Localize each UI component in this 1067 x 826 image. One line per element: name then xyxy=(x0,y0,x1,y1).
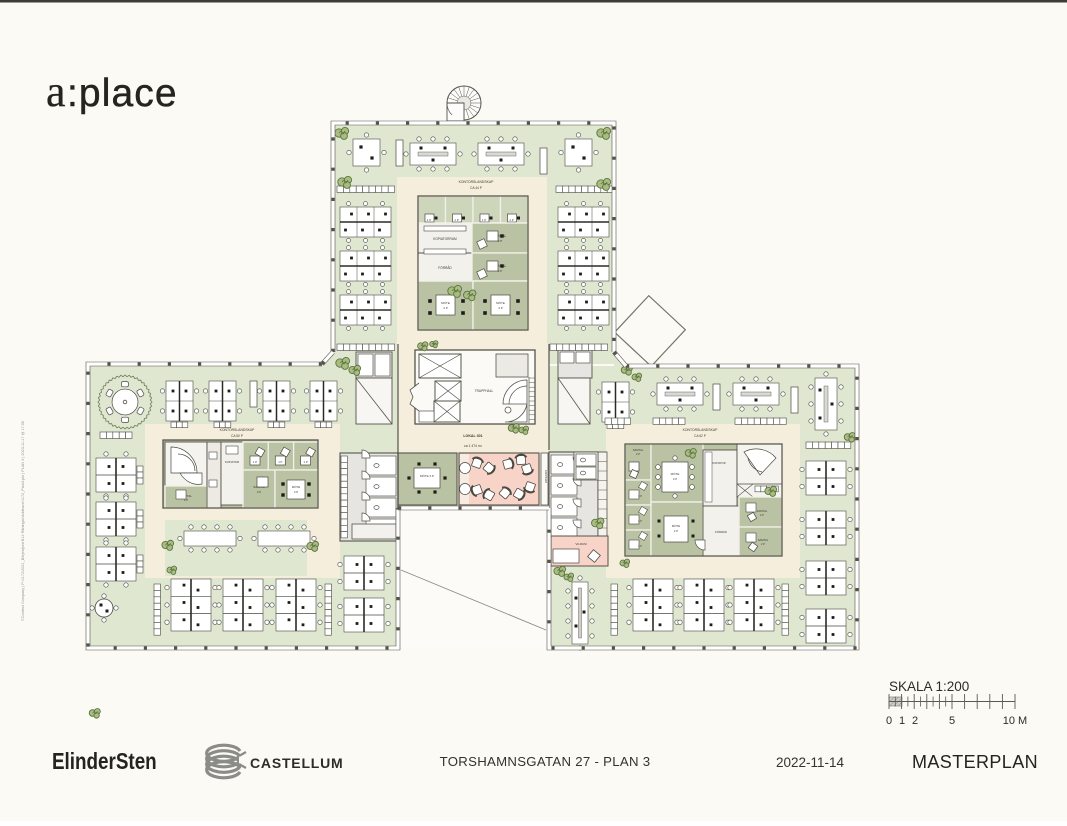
svg-text:SAMTAL: SAMTAL xyxy=(758,538,769,542)
svg-text:1: 1 xyxy=(899,715,905,727)
svg-text:2022-11-14: 2022-11-14 xyxy=(776,755,845,770)
svg-text:2 P: 2 P xyxy=(760,513,764,517)
svg-text:SAMTAL: SAMTAL xyxy=(633,448,644,452)
svg-text:1 P: 1 P xyxy=(427,218,432,222)
svg-text:CA 62 P: CA 62 P xyxy=(694,434,706,438)
svg-text:1 P: 1 P xyxy=(303,460,307,464)
svg-text:MÖTE: MÖTE xyxy=(672,524,680,528)
svg-text:4 P: 4 P xyxy=(294,490,298,494)
svg-text:2 P: 2 P xyxy=(257,490,261,494)
svg-text:4 P: 4 P xyxy=(498,306,503,310)
svg-text:1 P: 1 P xyxy=(638,519,642,523)
svg-text:MÖTE 4 P: MÖTE 4 P xyxy=(420,474,434,478)
svg-text:VILRUM: VILRUM xyxy=(575,542,587,546)
svg-text:1 P: 1 P xyxy=(278,460,282,464)
svg-text:TRAPPHALL: TRAPPHALL xyxy=(475,389,494,393)
svg-text:MÖTE: MÖTE xyxy=(671,472,680,476)
svg-text:2 P: 2 P xyxy=(498,269,503,273)
svg-text:1 P: 1 P xyxy=(482,218,487,222)
svg-text:SAMTAL: SAMTAL xyxy=(757,509,768,513)
svg-text:ca 1 474 m²: ca 1 474 m² xyxy=(464,444,483,448)
svg-text:MÖTE: MÖTE xyxy=(441,301,450,305)
svg-text:4 P: 4 P xyxy=(674,529,678,533)
svg-text:10 M: 10 M xyxy=(1003,715,1027,727)
svg-text:2: 2 xyxy=(912,715,918,727)
svg-text:KONTORSLANDSKAP: KONTORSLANDSKAP xyxy=(220,428,256,432)
svg-text::place: :place xyxy=(67,72,178,115)
svg-text:2 P: 2 P xyxy=(498,239,503,243)
svg-text:CA 44 P: CA 44 P xyxy=(470,186,482,190)
svg-text:1 P: 1 P xyxy=(454,218,459,222)
svg-text:KOPIATOR: KOPIATOR xyxy=(225,460,239,464)
svg-text:2 P: 2 P xyxy=(636,452,640,456)
svg-text:TORSHAMNSGATAN 27 - PLAN 3: TORSHAMNSGATAN 27 - PLAN 3 xyxy=(440,754,651,769)
svg-text:MÖTE: MÖTE xyxy=(292,485,300,489)
svg-text:a: a xyxy=(46,67,66,116)
svg-text:©Context Company | P:\1172\202: ©Context Company | P:\1172\2021_Börjesfj… xyxy=(21,421,25,621)
svg-text:FÖRRÅD: FÖRRÅD xyxy=(715,529,727,534)
svg-text:1 P: 1 P xyxy=(509,218,514,222)
svg-text:MÖTE: MÖTE xyxy=(496,301,505,305)
svg-text:KONTORSLANDSKAP: KONTORSLANDSKAP xyxy=(683,428,719,432)
svg-text:4 P: 4 P xyxy=(443,306,448,310)
svg-text:KAPPRUM: KAPPRUM xyxy=(544,470,548,483)
svg-text:ElinderSten: ElinderSten xyxy=(52,749,157,774)
svg-text:KOPIATORRUM: KOPIATORRUM xyxy=(433,237,457,241)
svg-text:1 P: 1 P xyxy=(638,544,642,548)
svg-text:2 P: 2 P xyxy=(761,542,765,546)
svg-text:LOKAL 301: LOKAL 301 xyxy=(463,434,482,438)
svg-text:5: 5 xyxy=(949,715,955,727)
svg-text:CASTELLUM: CASTELLUM xyxy=(250,755,344,771)
svg-text:4 P: 4 P xyxy=(673,477,677,481)
svg-text:MASTERPLAN: MASTERPLAN xyxy=(912,752,1038,772)
svg-text:KONTORSLANDSKAP: KONTORSLANDSKAP xyxy=(459,180,495,184)
svg-text:1 P: 1 P xyxy=(253,460,257,464)
svg-text:KOPIATOR: KOPIATOR xyxy=(712,461,725,465)
svg-text:SKALA 1:200: SKALA 1:200 xyxy=(889,679,969,694)
svg-text:0: 0 xyxy=(886,715,892,727)
svg-text:CA 50 P: CA 50 P xyxy=(231,434,243,438)
svg-text:1 P: 1 P xyxy=(638,494,642,498)
svg-text:FÖRRÅD: FÖRRÅD xyxy=(438,265,452,270)
